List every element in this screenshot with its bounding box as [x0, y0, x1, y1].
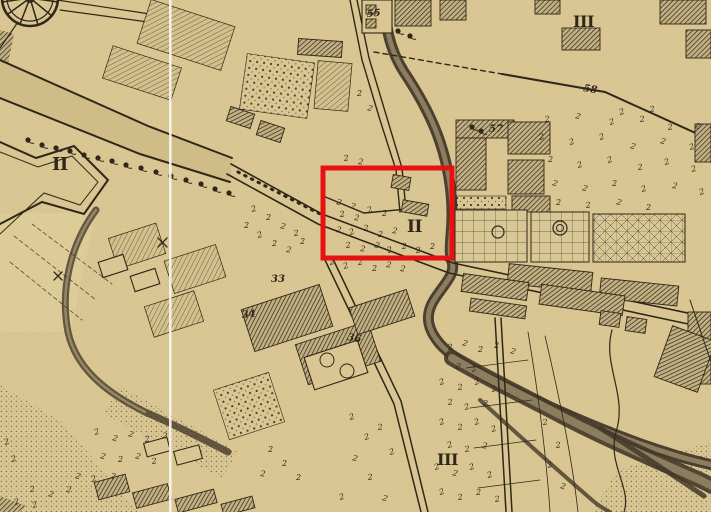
plot-number: 57 [489, 124, 503, 135]
tree-symbol: 2 [648, 104, 655, 114]
tree-symbol: 2 [477, 345, 483, 354]
tree-symbol: 2 [285, 245, 292, 255]
map-building [593, 214, 685, 262]
tree-symbol: 2 [362, 223, 369, 233]
tree-symbol: 2 [638, 114, 645, 124]
map-building [366, 19, 376, 28]
tree-symbol [153, 169, 158, 174]
plot-number: 58 [583, 83, 599, 96]
map-building [314, 61, 352, 112]
tree-symbol: 2 [456, 422, 463, 432]
tree-symbol: 2 [299, 237, 305, 246]
tree-symbol: 2 [385, 260, 392, 270]
tree-symbol: 2 [399, 264, 406, 274]
map-building [297, 38, 342, 57]
tree-symbol: 2 [391, 226, 398, 236]
tree-symbol: 2 [271, 239, 277, 248]
tree-symbol: 2 [371, 264, 377, 273]
tree-symbol: 2 [357, 157, 364, 167]
tree-symbol [39, 142, 44, 147]
tree-symbol [109, 158, 114, 163]
tree-symbol: 2 [150, 456, 157, 466]
map-building [562, 28, 600, 50]
tree-symbol: 2 [117, 455, 123, 464]
map-building [456, 120, 514, 138]
tree-symbol: 2 [295, 473, 301, 482]
tree-symbol: 2 [636, 162, 643, 172]
tree-symbol [395, 28, 400, 33]
tree-symbol: 2 [414, 245, 421, 255]
map-building [531, 212, 589, 262]
tree-symbol: 2 [666, 122, 673, 132]
tree-symbol: 2 [243, 221, 249, 230]
tree-symbol: 2 [456, 382, 463, 392]
tree-symbol: 2 [359, 244, 366, 254]
map-building [599, 311, 621, 328]
map-building [686, 30, 711, 58]
tree-symbol: 2 [65, 485, 72, 495]
district-numeral: II [52, 154, 68, 175]
tree-symbol: 2 [377, 230, 383, 239]
map-building [625, 317, 647, 334]
map-building [660, 0, 706, 24]
tree-symbol: 2 [463, 444, 470, 454]
tree-symbol: 2 [161, 431, 168, 441]
map-building [239, 54, 314, 119]
map-building [508, 160, 544, 194]
map-building [440, 0, 466, 20]
tree-symbol [407, 33, 412, 38]
tree-symbol [478, 128, 483, 133]
tree-symbol: 2 [28, 484, 35, 494]
tree-symbol [95, 155, 100, 160]
tree-symbol [53, 145, 58, 150]
tree-symbol: 2 [584, 200, 591, 210]
tree-symbol [81, 152, 86, 157]
tree-symbol: 2 [381, 209, 387, 218]
tree-symbol: 2 [281, 459, 287, 468]
tree-symbol: 2 [143, 434, 150, 444]
tree-symbol: 2 [353, 213, 360, 223]
tree-symbol [138, 165, 143, 170]
tree-symbol: 2 [335, 225, 342, 235]
tree-symbol [212, 186, 217, 191]
tree-symbol: 2 [429, 242, 435, 251]
tree-symbol: 2 [338, 209, 345, 219]
district-numeral: II [407, 217, 422, 237]
tree-symbol: 2 [481, 441, 488, 451]
map-building [456, 196, 506, 209]
plot-number: 34 [241, 309, 256, 321]
tree-symbol: 2 [555, 198, 561, 207]
plot-number: 33 [271, 274, 285, 285]
tree-symbol [226, 190, 231, 195]
tree-symbol: 2 [493, 341, 499, 350]
tree-symbol [469, 124, 474, 129]
tree-symbol: 2 [611, 179, 617, 188]
tree-symbol: 2 [400, 241, 407, 251]
map-building [391, 175, 411, 191]
tree-symbol [198, 181, 203, 186]
tree-symbol [25, 137, 30, 142]
tree-symbol: 2 [292, 228, 299, 238]
tree-symbol: 2 [342, 153, 349, 163]
tree-symbol [67, 148, 72, 153]
tree-symbol: 2 [475, 488, 481, 497]
tree-symbol: 2 [446, 342, 453, 352]
tree-symbol: 2 [541, 417, 548, 427]
map-building [535, 0, 560, 14]
tree-symbol [183, 177, 188, 182]
map-building [455, 210, 527, 262]
tree-symbol [123, 162, 128, 167]
tree-symbol: 2 [671, 181, 678, 191]
tree-symbol: 2 [543, 114, 550, 124]
district-numeral: III [437, 450, 458, 469]
district-numeral: III [573, 12, 594, 31]
tree-symbol: 2 [259, 469, 266, 479]
tree-symbol: 2 [344, 240, 351, 250]
tree-symbol: 2 [645, 203, 651, 212]
tree-symbol: 2 [493, 494, 500, 504]
tree-symbol: 2 [446, 397, 453, 407]
tree-symbol: 2 [366, 472, 373, 482]
map-building [395, 0, 431, 26]
scan-seam-line [169, 0, 172, 512]
tree-symbol: 2 [547, 155, 553, 164]
tree-symbol: 2 [376, 422, 383, 432]
tree-symbol: 2 [356, 89, 362, 98]
tree-symbol: 2 [267, 445, 273, 454]
engraved-city-plan: 2222222222222222222222222222222222222222… [0, 0, 711, 512]
tree-symbol: 2 [265, 213, 271, 222]
tree-symbol: 2 [554, 440, 561, 450]
tree-symbol: 2 [456, 492, 463, 502]
historical-map-viewport[interactable]: 2222222222222222222222222222222222222222… [0, 0, 711, 512]
map-building [456, 138, 486, 190]
plot-number: 55 [366, 8, 381, 20]
